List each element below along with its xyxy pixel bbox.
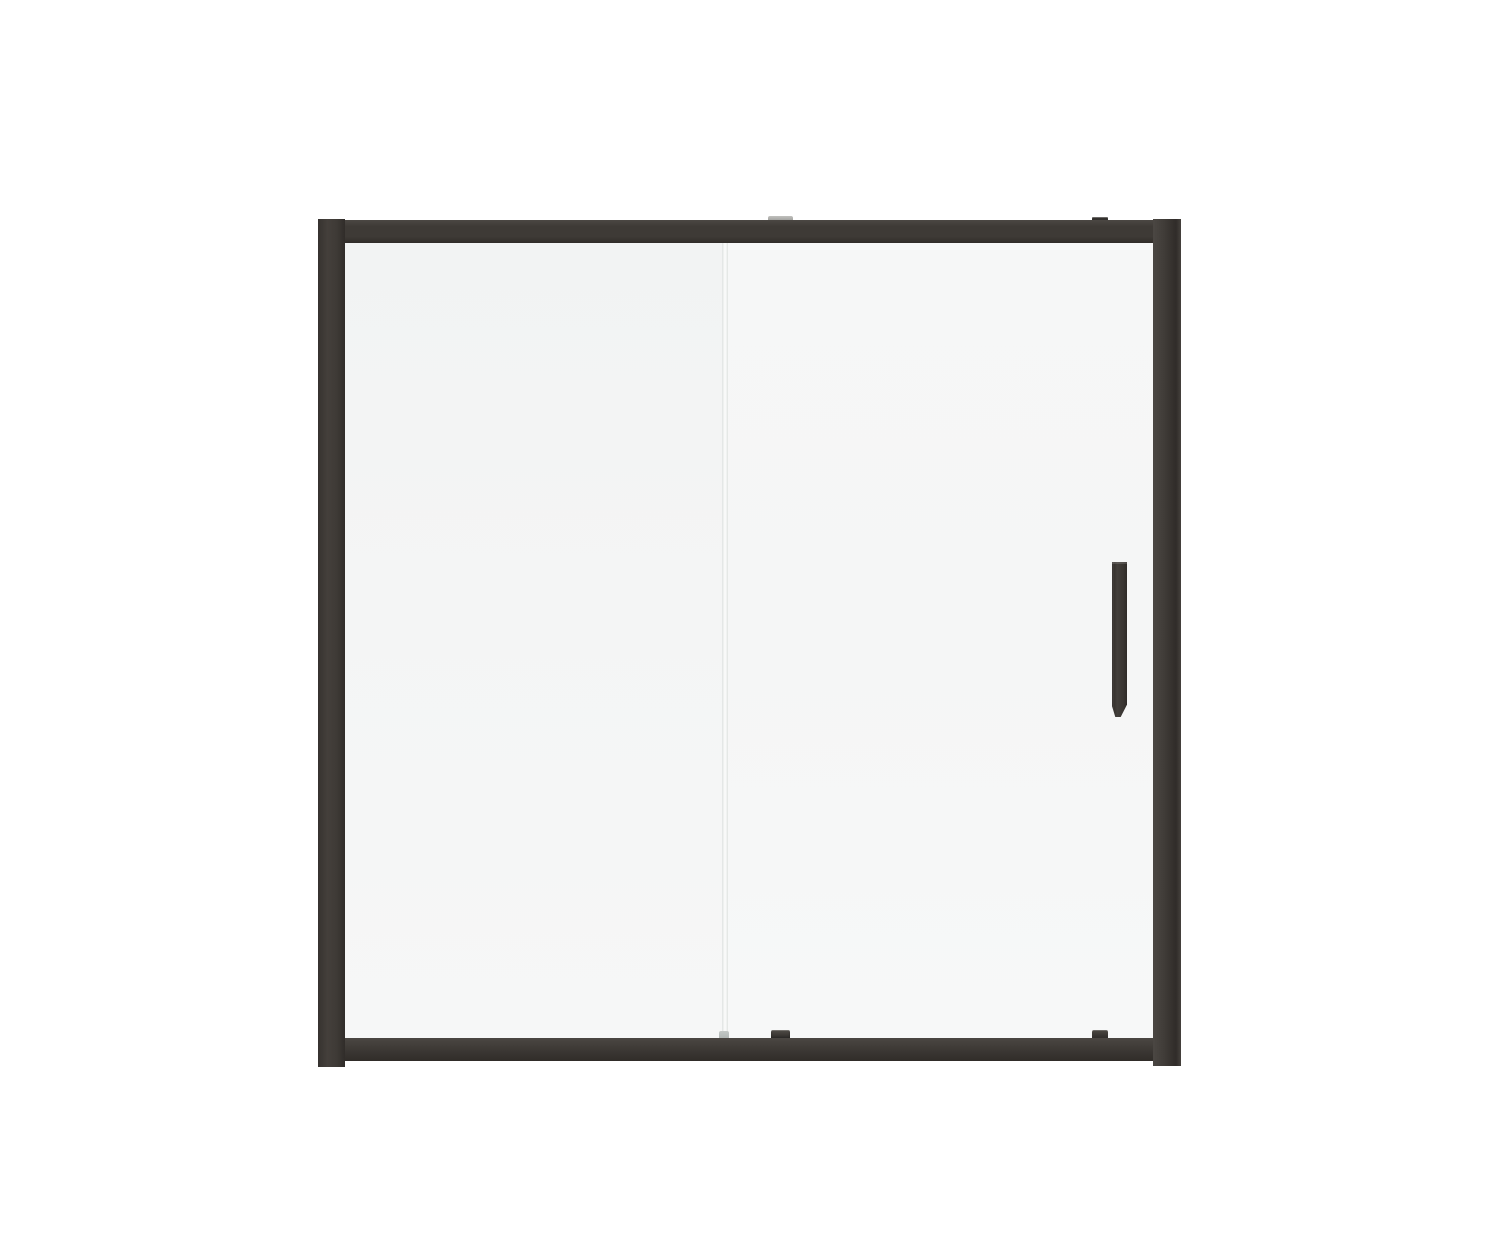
panel-overlap-seam — [722, 242, 728, 1038]
door-pull-handle — [1112, 562, 1127, 717]
fixed-glass-panel — [345, 242, 723, 1038]
frame-top-rail — [344, 220, 1153, 243]
frame-right-jamb — [1153, 219, 1181, 1066]
sliding-glass-panel — [727, 242, 1153, 1038]
shower-door-product-image — [0, 0, 1500, 1260]
frame-bottom-rail — [344, 1038, 1153, 1061]
frame-left-jamb — [318, 219, 345, 1067]
